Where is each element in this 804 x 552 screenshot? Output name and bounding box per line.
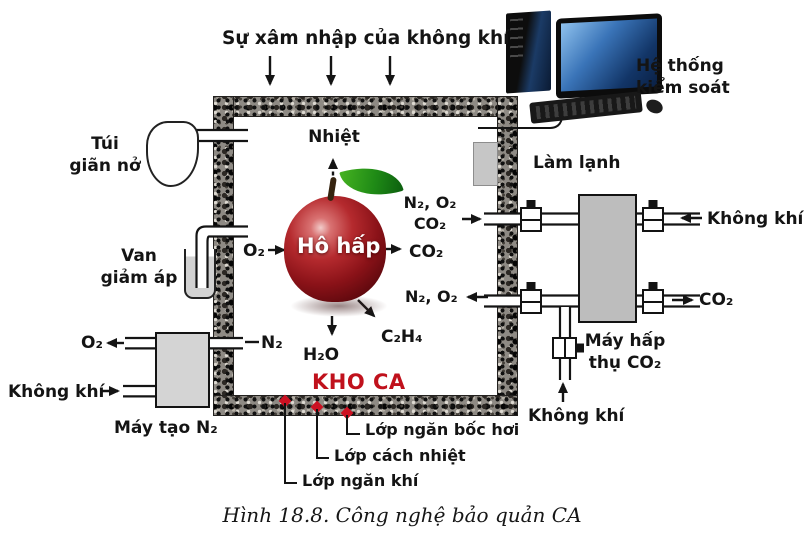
expansion-bag-label: Túi giãn nở: [66, 133, 144, 177]
layer-insulation-label: Lớp cách nhiệt: [334, 446, 466, 467]
n2-generator-label: Máy tạo N₂: [114, 417, 218, 439]
air-in-bottom-label: Không khí: [528, 405, 624, 427]
gas-outflow-line1: N₂, O₂: [401, 193, 459, 214]
cooling-label: Làm lạnh: [533, 152, 620, 174]
ethylene-label: C₂H₄: [381, 326, 423, 348]
valve-wall-top: [520, 207, 542, 232]
o2-left-label: O₂: [81, 332, 103, 354]
co2-absorber-line2: thụ CO₂: [583, 352, 667, 374]
layer-evaporation-label: Lớp ngăn bốc hơi: [365, 420, 519, 441]
valve-cooler-bottom: [642, 289, 664, 314]
relief-valve-line2: giảm áp: [98, 267, 180, 289]
chamber-wall-right: [497, 96, 518, 416]
computer-tower-icon: [506, 10, 551, 93]
n2-generator-box: [155, 332, 210, 408]
air-ingress-label: Sự xâm nhập của không khí: [222, 27, 510, 51]
wall-sensor-box: [473, 142, 498, 186]
expansion-bag-shape: [146, 121, 199, 187]
valve-cooler-top: [642, 207, 664, 232]
relief-valve-line1: Van: [98, 245, 180, 267]
water-label: H₂O: [303, 344, 339, 366]
storage-name-label: KHO CA: [312, 369, 406, 396]
figure-caption: Hình 18.8. Công nghệ bảo quản CA: [0, 503, 804, 527]
co2-out-right-label: CO₂: [699, 289, 733, 311]
heat-label: Nhiệt: [308, 126, 360, 148]
valve-air-intake: [552, 337, 577, 359]
co2-absorber-label: Máy hấp thụ CO₂: [583, 330, 667, 374]
chamber-wall-left: [213, 96, 234, 416]
expansion-bag-line1: Túi: [66, 133, 144, 155]
control-system-line1: Hệ thống: [636, 55, 720, 77]
relief-valve-beaker: [184, 249, 216, 299]
air-in-right-label: Không khí: [707, 208, 803, 230]
computer-mouse-icon: [644, 97, 665, 116]
air-ingress-arrows: [270, 56, 390, 84]
n2-in-label: N₂: [261, 332, 283, 354]
gas-outflow-label: N₂, O₂ CO₂: [401, 193, 459, 235]
o2-in-label: O₂: [243, 240, 265, 262]
expansion-bag-line2: giãn nở: [66, 155, 144, 177]
valve-wall-bottom: [520, 289, 542, 314]
ca-storage-diagram: Sự xâm nhập của không khí Hệ thống kiểm …: [0, 0, 804, 552]
gas-inflow-label: N₂, O₂: [405, 287, 458, 308]
chamber-wall-bottom: [213, 395, 518, 416]
control-system-label: Hệ thống kiểm soát: [636, 55, 720, 99]
air-left-label: Không khí: [8, 381, 104, 403]
chamber-wall-top: [213, 96, 518, 117]
respiration-label: Hô hấp: [297, 233, 375, 260]
control-system-line2: kiểm soát: [636, 77, 720, 99]
co2-absorber-line1: Máy hấp: [583, 330, 667, 352]
relief-valve-label: Van giảm áp: [98, 245, 180, 289]
gas-outflow-line2: CO₂: [401, 214, 459, 235]
computer-keyboard-icon: [529, 91, 643, 124]
layer-gas-label: Lớp ngăn khí: [302, 471, 418, 492]
co2-out-label: CO₂: [409, 241, 443, 263]
cooling-unit-box: [578, 194, 637, 323]
